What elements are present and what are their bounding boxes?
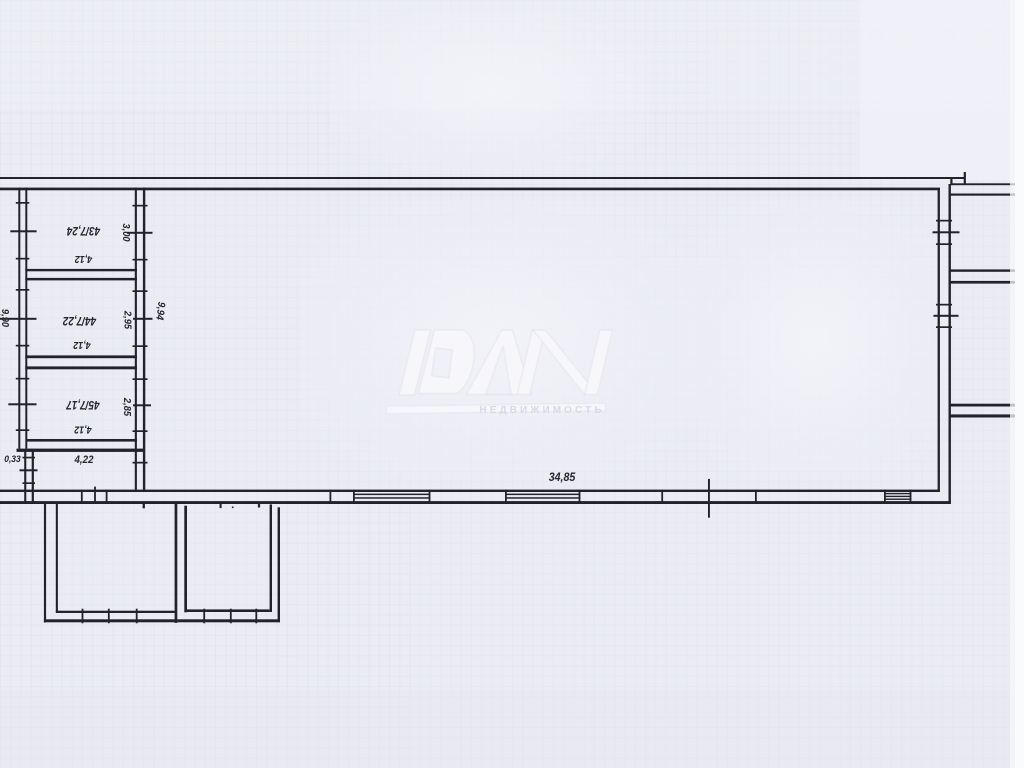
svg-text:9,90: 9,90 — [0, 309, 10, 328]
svg-text:43/7,24: 43/7,24 — [67, 224, 101, 237]
svg-text:НЕДВИЖИМОСТЬ: НЕДВИЖИМОСТЬ — [479, 405, 604, 416]
svg-text:34,85: 34,85 — [549, 472, 576, 485]
svg-text:4,12: 4,12 — [74, 423, 93, 435]
svg-text:45/7,17: 45/7,17 — [65, 398, 100, 411]
svg-text:4,22: 4,22 — [74, 455, 94, 467]
svg-text:3,00: 3,00 — [120, 223, 132, 242]
svg-text:4,12: 4,12 — [73, 339, 92, 351]
svg-text:2,95: 2,95 — [121, 310, 133, 330]
svg-text:44/7,22: 44/7,22 — [63, 314, 97, 327]
svg-text:4,12: 4,12 — [74, 253, 93, 265]
svg-text:2,85: 2,85 — [121, 397, 133, 417]
svg-text:0,33: 0,33 — [4, 453, 21, 464]
svg-text:9,94: 9,94 — [153, 301, 167, 321]
